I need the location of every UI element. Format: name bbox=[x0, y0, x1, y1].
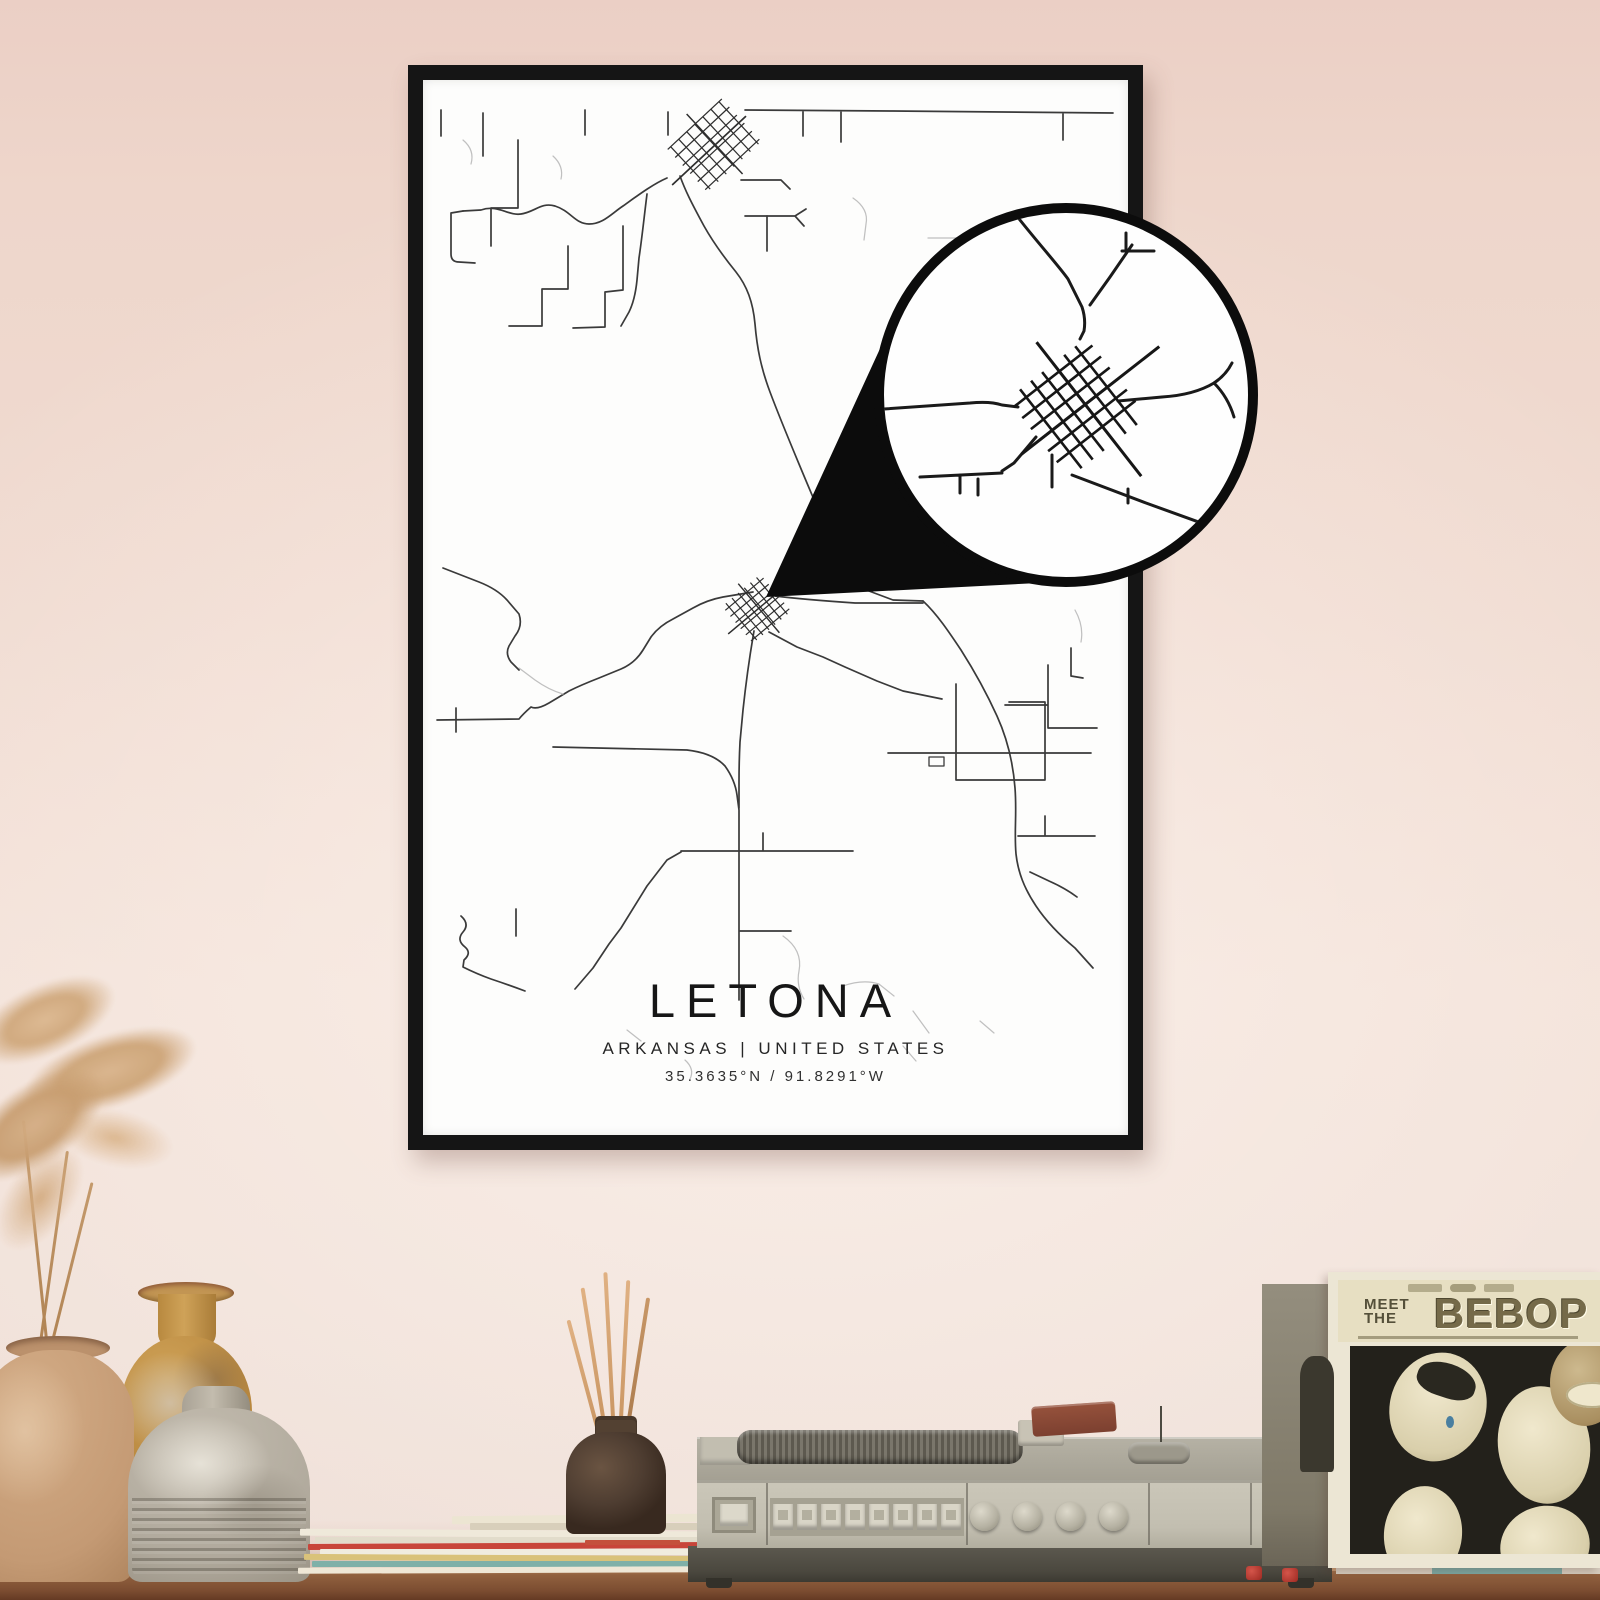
player-base bbox=[688, 1546, 1332, 1582]
preset-button bbox=[941, 1504, 961, 1530]
rotary-knob bbox=[970, 1502, 999, 1531]
rotary-knob bbox=[1056, 1502, 1085, 1531]
sleeve-artwork bbox=[1350, 1346, 1600, 1554]
poster-title-block: LETONA ARKANSAS | UNITED STATES 35.3635°… bbox=[423, 973, 1128, 1085]
preset-button bbox=[773, 1504, 793, 1530]
power-button-cap bbox=[720, 1504, 748, 1526]
record-sleeve: MEET THE BEBOP bbox=[1328, 1272, 1600, 1568]
rotary-knob bbox=[1013, 1502, 1042, 1531]
poster-coordinates: 35.3635°N / 91.8291°W bbox=[423, 1068, 1128, 1085]
red-cable-plug bbox=[1246, 1566, 1262, 1580]
preset-button bbox=[917, 1504, 937, 1530]
diffuser-reed bbox=[603, 1272, 616, 1437]
preset-button bbox=[845, 1504, 865, 1530]
preset-button-row bbox=[770, 1498, 964, 1536]
panel-seam bbox=[766, 1483, 768, 1545]
control-knobs bbox=[970, 1496, 1142, 1536]
sleeve-fineprint bbox=[1358, 1336, 1578, 1339]
figure-silhouette bbox=[1300, 1356, 1334, 1472]
zoom-inset-map bbox=[884, 213, 1248, 577]
sleeve-title-main: BEBOP bbox=[1434, 1290, 1588, 1338]
face-illustration bbox=[1379, 1482, 1467, 1554]
face-illustration bbox=[1492, 1496, 1599, 1554]
player-foot bbox=[706, 1578, 732, 1588]
blue-accent bbox=[1446, 1416, 1454, 1428]
poster-region-line: ARKANSAS | UNITED STATES bbox=[423, 1039, 1128, 1059]
sleeve-title-the: THE bbox=[1364, 1312, 1410, 1326]
preset-button bbox=[893, 1504, 913, 1530]
town-grid-letona bbox=[708, 566, 801, 659]
town-grid-north bbox=[643, 85, 773, 214]
preset-button bbox=[869, 1504, 889, 1530]
turntable-platter bbox=[737, 1430, 1023, 1464]
panel-seam bbox=[966, 1483, 968, 1545]
tonearm-cartridge bbox=[1031, 1401, 1117, 1437]
rotary-knob bbox=[1099, 1502, 1128, 1531]
face-illustration bbox=[1375, 1346, 1500, 1474]
room-scene: MEET THE BEBOP bbox=[0, 0, 1600, 1600]
preset-button bbox=[797, 1504, 817, 1530]
zoom-callout-circle bbox=[874, 203, 1258, 587]
sleeve-title-small: MEET THE bbox=[1364, 1298, 1410, 1326]
preset-button bbox=[821, 1504, 841, 1530]
gray-vase-ribs bbox=[132, 1498, 306, 1578]
sleeve-header: MEET THE BEBOP bbox=[1338, 1280, 1600, 1342]
power-button bbox=[712, 1497, 756, 1533]
poster-city-title: LETONA bbox=[423, 973, 1128, 1028]
diffuser-bottle bbox=[566, 1432, 666, 1534]
teal-record-edge bbox=[1432, 1568, 1562, 1574]
magazine bbox=[585, 1540, 680, 1545]
red-cable-plug bbox=[1282, 1568, 1298, 1582]
tan-vase bbox=[0, 1350, 134, 1582]
panel-seam bbox=[1250, 1483, 1252, 1545]
panel-seam bbox=[1148, 1483, 1150, 1545]
player-spindle-knob bbox=[1128, 1442, 1190, 1464]
